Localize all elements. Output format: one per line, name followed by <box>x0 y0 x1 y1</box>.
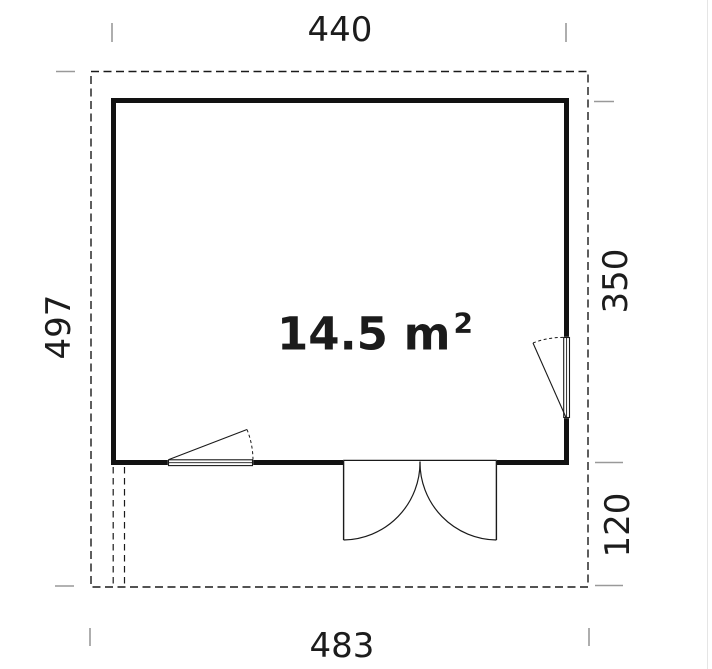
area-value: 14.5 m <box>277 308 451 361</box>
window-bottom-swing-arc <box>247 430 253 460</box>
window-right <box>533 337 570 417</box>
door-right-swing-arc <box>420 462 496 541</box>
dimension-height-right-main: 350 <box>599 249 633 314</box>
area-superscript: 2 <box>454 310 473 338</box>
dimension-depth-right-lower: 120 <box>601 493 635 558</box>
window-right-sash-open <box>533 343 566 418</box>
dimension-width-top: 440 <box>308 13 373 47</box>
window-bottom <box>169 430 254 466</box>
dimension-height-left: 497 <box>42 295 76 360</box>
exterior-walls <box>114 101 567 463</box>
floor-plan-page: 440 497 350 120 483 14.5 m2 <box>0 0 712 669</box>
dimension-width-bottom: 483 <box>310 629 375 663</box>
door-left-swing-arc <box>344 462 420 541</box>
area-label: 14.5 m2 <box>277 312 473 357</box>
window-bottom-sash-open <box>169 430 247 460</box>
wall-projection-dashed-lines <box>113 467 124 586</box>
window-right-swing-arc <box>533 337 566 343</box>
double-door <box>343 460 497 540</box>
